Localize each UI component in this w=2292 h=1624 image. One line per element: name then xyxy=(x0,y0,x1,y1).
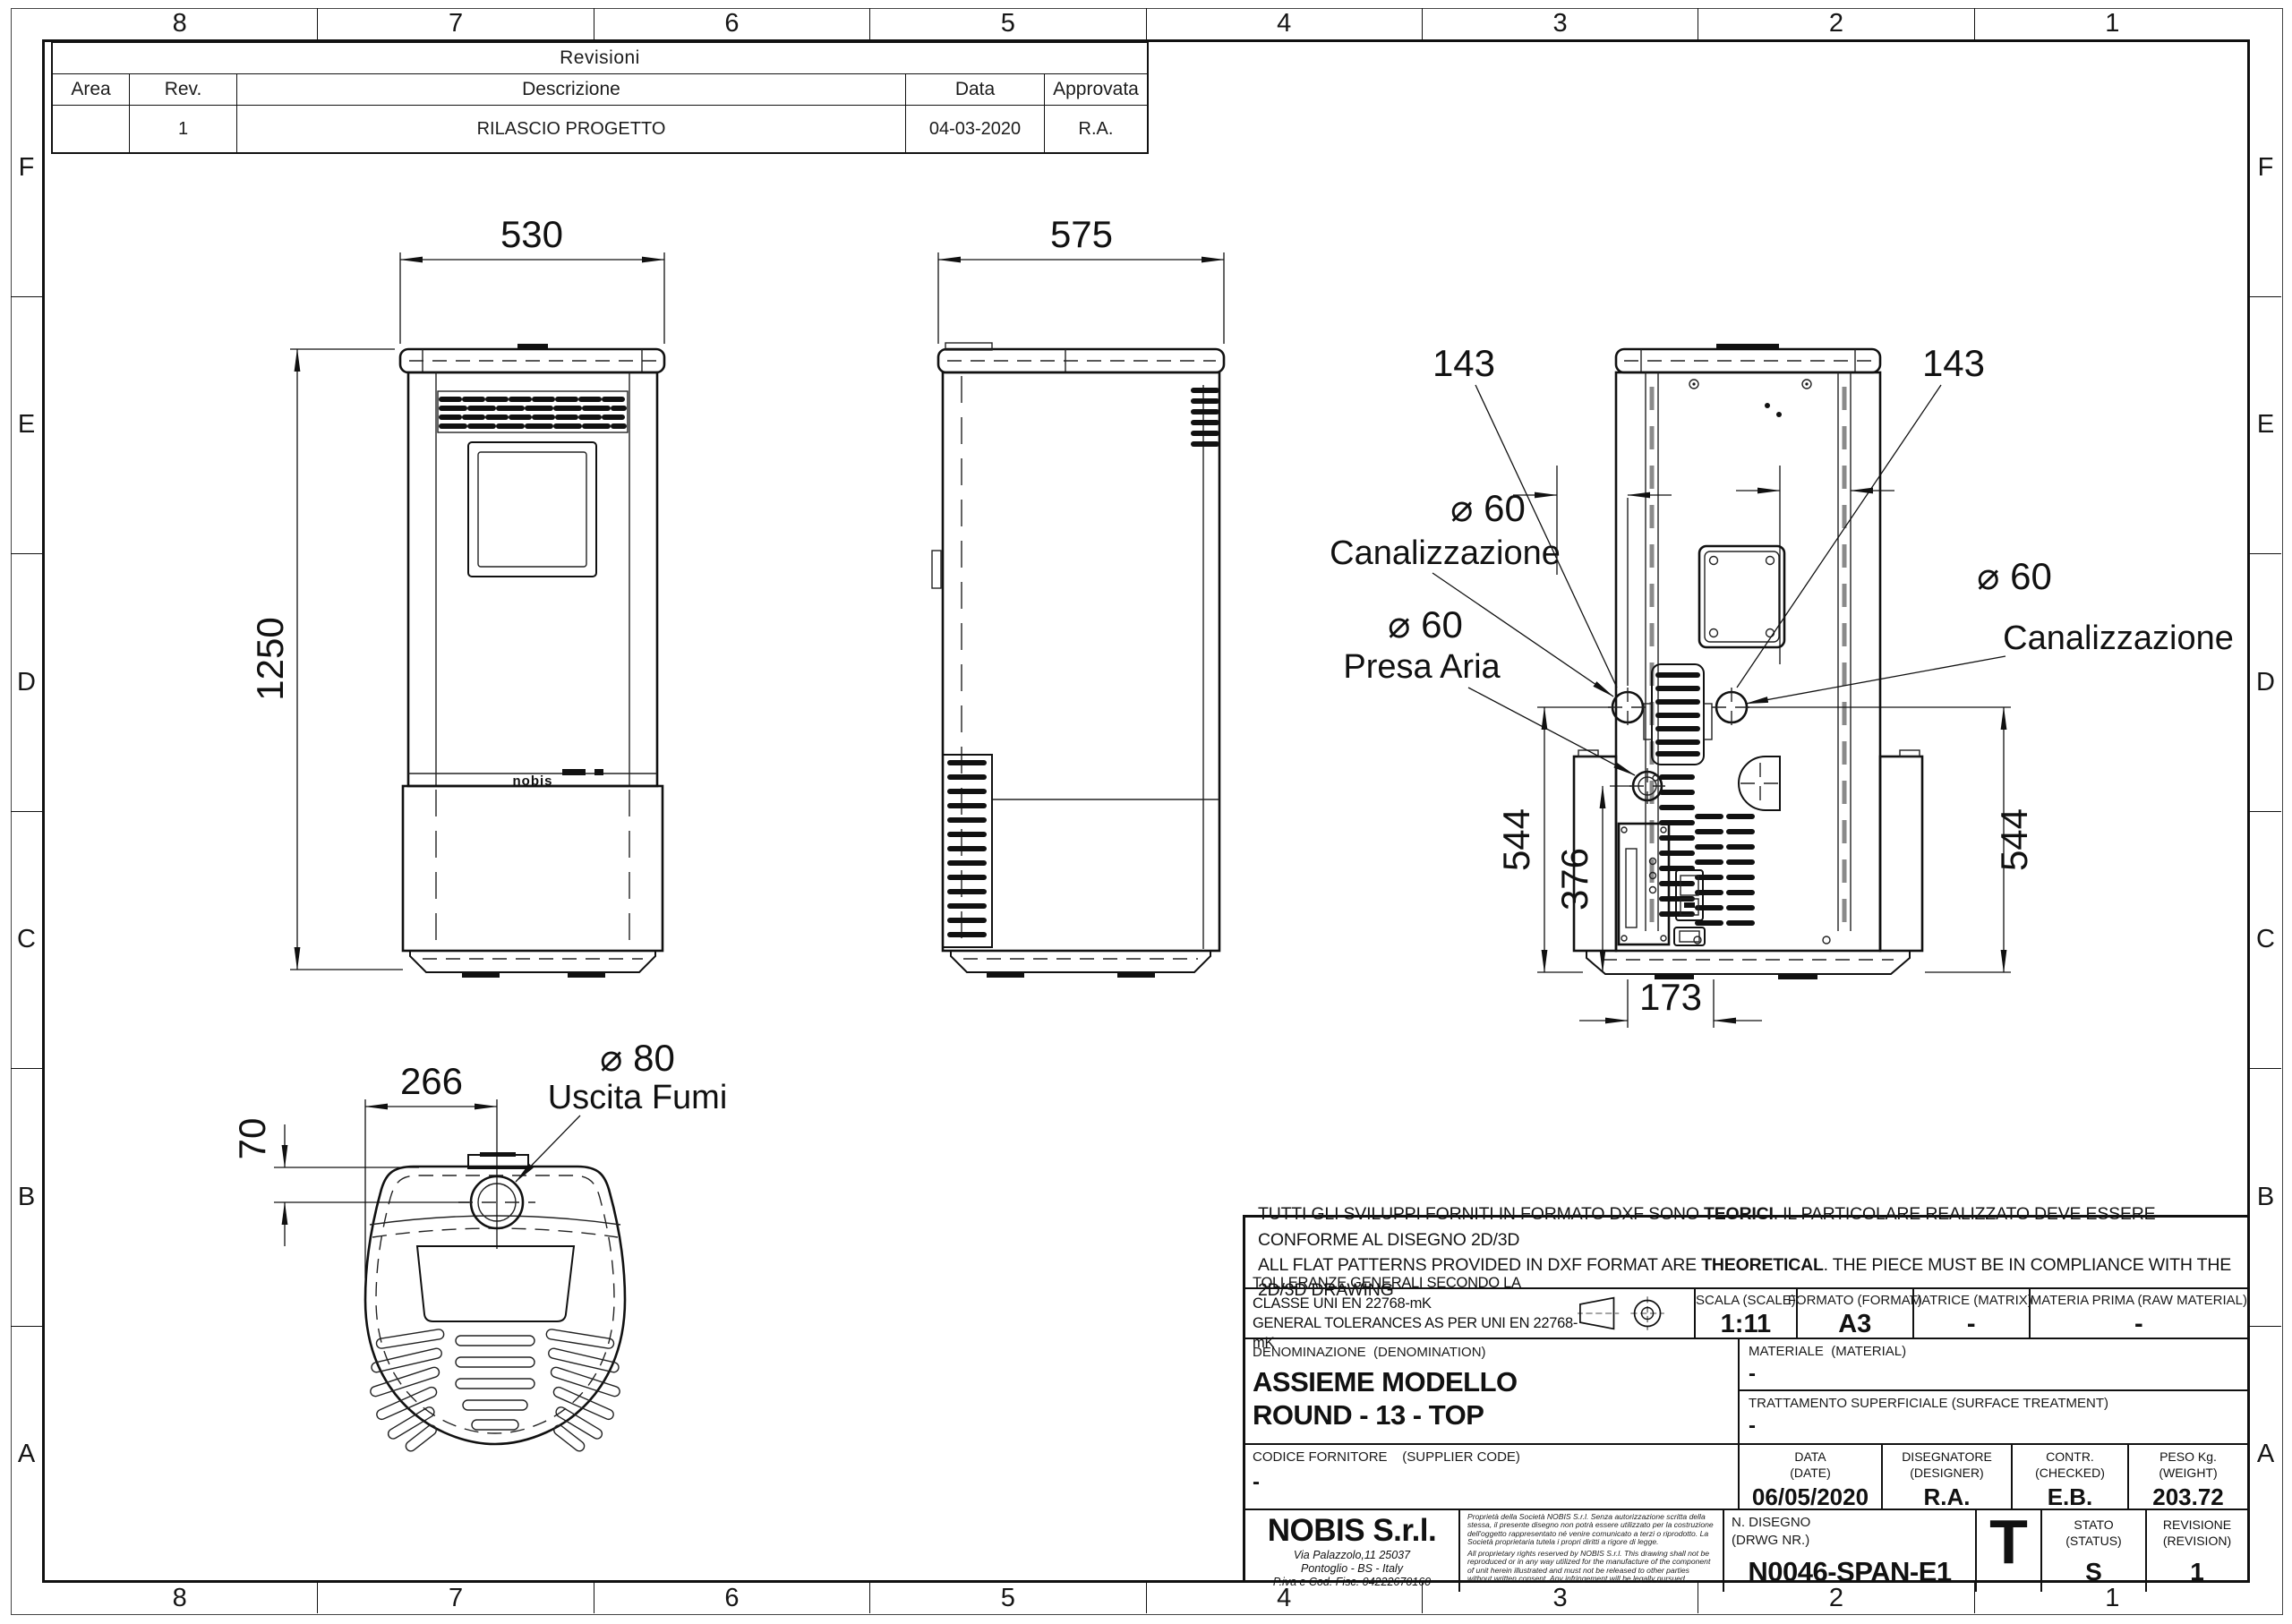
date-cell: DATA (DATE) 06/05/2020 xyxy=(1740,1445,1883,1509)
matrix-cell: MATRICE (MATRIX) - xyxy=(1914,1289,2031,1338)
legal-notice-en: All proprietary rights reserved by NOBIS… xyxy=(1467,1550,1715,1584)
dim-front-width: 530 xyxy=(500,213,563,255)
label-duct-left-dia: ⌀ 60 xyxy=(1450,487,1526,529)
dim-back-right-offset: 143 xyxy=(1922,342,1985,384)
date-label-en: (DATE) xyxy=(1790,1466,1831,1482)
weight-value: 203.72 xyxy=(2152,1483,2224,1511)
company-row: NOBIS S.r.l. Via Palazzolo,11 25037 Pont… xyxy=(1245,1510,2247,1592)
supplier-code-label: CODICE FORNITORE (SUPPLIER CODE) xyxy=(1253,1449,1731,1465)
label-duct-right: Canalizzazione xyxy=(2003,620,2234,657)
supplier-code-value: - xyxy=(1253,1470,1731,1495)
revision-label: REVISIONE (REVISION) xyxy=(2163,1517,2231,1549)
company-addr1: Via Palazzolo,11 25037 xyxy=(1273,1549,1431,1562)
material-label: MATERIALE (MATERIAL) xyxy=(1749,1344,2238,1359)
denomination-row: DENOMINAZIONE (DENOMINATION) ASSIEME MOD… xyxy=(1245,1339,2247,1445)
weight-label-en: (WEIGHT) xyxy=(2159,1466,2217,1482)
scale-cell: SCALA (SCALE) 1:11 xyxy=(1696,1289,1798,1338)
dim-air-intake-height: 376 xyxy=(1553,848,1595,910)
side-view: 575 xyxy=(932,213,1224,978)
title-block: TUTTI GLI SVILUPPI FORNITI IN FORMATO DX… xyxy=(1243,1215,2250,1583)
type-mark: T xyxy=(1989,1510,2028,1573)
checked-label: CONTR. (CHECKED) xyxy=(2035,1449,2105,1481)
designer-label-it: DISEGNATORE xyxy=(1902,1449,1992,1466)
matrix-label: MATRICE (MATRIX) xyxy=(1911,1293,2032,1308)
disclaimer-it-a: TUTTI GLI SVILUPPI FORNITI IN FORMATO DX… xyxy=(1258,1204,1704,1224)
tolerances-line1: TOLLERANZE GENERALI SECONDO LA CLASSE UN… xyxy=(1253,1273,1578,1313)
revision-cell: REVISIONE (REVISION) 1 xyxy=(2147,1510,2247,1592)
disclaimer-it: TUTTI GLI SVILUPPI FORNITI IN FORMATO DX… xyxy=(1258,1201,2235,1252)
designer-label: DISEGNATORE (DESIGNER) xyxy=(1902,1449,1992,1481)
back-view: 143 143 ⌀ 60 Canalizzazione ⌀ 60 Presa A… xyxy=(1330,342,2234,1028)
dim-front-height: 1250 xyxy=(249,617,291,700)
label-flue-dia: ⌀ 80 xyxy=(600,1037,675,1079)
top-view: 266 70 ⌀ 80 Uscita Fumi xyxy=(231,1037,727,1453)
col-header-rev: Rev. xyxy=(130,74,237,105)
cell-area xyxy=(53,106,130,152)
cell-data: 04-03-2020 xyxy=(906,106,1045,152)
drawing-number-value: N0046-SPAN-E1 xyxy=(1732,1556,1968,1588)
revision-table: Revisioni Area Rev. Descrizione Data App… xyxy=(51,41,1149,154)
designer-label-en: (DESIGNER) xyxy=(1902,1466,1992,1482)
drawing-number-label-en: (DRWG NR.) xyxy=(1732,1532,1968,1550)
col-header-descrizione: Descrizione xyxy=(237,74,906,105)
company-addr3: P.iva e Cod. Fisc. 04222670160 xyxy=(1273,1576,1431,1589)
disclaimer-en-b: THEORETICAL xyxy=(1701,1255,1823,1275)
checked-value: E.B. xyxy=(2048,1483,2093,1511)
supplier-date-row: CODICE FORNITORE (SUPPLIER CODE) - DATA … xyxy=(1245,1445,2247,1510)
status-label-en: (STATUS) xyxy=(2065,1534,2121,1550)
checked-label-it: CONTR. xyxy=(2035,1449,2105,1466)
drawing-number-cell: N. DISEGNO (DRWG NR.) N0046-SPAN-E1 xyxy=(1724,1510,1977,1592)
revision-value: 1 xyxy=(2190,1558,2204,1586)
company-address: Via Palazzolo,11 25037 Pontoglio - BS - … xyxy=(1273,1549,1431,1589)
format-label: FORMATO (FORMAT) xyxy=(1788,1293,1922,1308)
status-label: STATO (STATUS) xyxy=(2065,1517,2121,1549)
legal-notice-cell: Proprietà della Società NOBIS S.r.l. Sen… xyxy=(1460,1510,1724,1592)
col-header-area: Area xyxy=(53,74,130,105)
disclaimer-it-b: TEORICI xyxy=(1704,1204,1774,1224)
label-air-intake: Presa Aria xyxy=(1343,648,1501,686)
company-addr2: Pontoglio - BS - Italy xyxy=(1273,1562,1431,1576)
col-header-approvata: Approvata xyxy=(1045,74,1147,105)
format-cell: FORMATO (FORMAT) A3 xyxy=(1798,1289,1914,1338)
denomination-line1: ASSIEME MODELLO xyxy=(1253,1365,1731,1398)
matrix-value: - xyxy=(1967,1310,1976,1339)
weight-cell: PESO Kg. (WEIGHT) 203.72 xyxy=(2129,1445,2247,1509)
raw-material-cell: MATERIA PRIMA (RAW MATERIAL) - xyxy=(2031,1289,2247,1338)
dim-back-left-offset: 143 xyxy=(1432,342,1495,384)
weight-label-it: PESO Kg. xyxy=(2159,1449,2217,1466)
status-cell: STATO (STATUS) S xyxy=(2042,1510,2147,1592)
label-air-intake-dia: ⌀ 60 xyxy=(1388,603,1463,645)
designer-cell: DISEGNATORE (DESIGNER) R.A. xyxy=(1883,1445,2013,1509)
format-value: A3 xyxy=(1838,1310,1871,1339)
revision-label-it: REVISIONE xyxy=(2163,1517,2231,1534)
dim-duct-spacing: 173 xyxy=(1639,976,1702,1018)
cell-rev: 1 xyxy=(130,106,237,152)
type-mark-cell: T xyxy=(1977,1510,2042,1592)
surface-treatment-value: - xyxy=(1749,1414,2238,1439)
date-label: DATA (DATE) xyxy=(1790,1449,1831,1481)
legal-notice-it: Proprietà della Società NOBIS S.r.l. Sen… xyxy=(1467,1513,1715,1547)
cell-descrizione: RILASCIO PROGETTO xyxy=(237,106,906,152)
dim-side-depth: 575 xyxy=(1050,213,1113,255)
dim-back-height-right: 544 xyxy=(1993,808,2035,871)
checked-cell: CONTR. (CHECKED) E.B. xyxy=(2013,1445,2129,1509)
revision-table-header: Area Rev. Descrizione Data Approvata xyxy=(53,74,1147,106)
checked-label-en: (CHECKED) xyxy=(2035,1466,2105,1482)
label-duct-right-dia: ⌀ 60 xyxy=(1977,555,2052,597)
denomination-value: ASSIEME MODELLO ROUND - 13 - TOP xyxy=(1253,1365,1731,1432)
date-value: 06/05/2020 xyxy=(1752,1483,1869,1511)
revision-row: 1 RILASCIO PROGETTO 04-03-2020 R.A. xyxy=(53,106,1147,152)
surface-treatment-label: TRATTAMENTO SUPERFICIALE (SURFACE TREATM… xyxy=(1749,1396,2238,1411)
dim-back-height-left: 544 xyxy=(1495,808,1537,871)
material-column: MATERIALE (MATERIAL) - TRATTAMENTO SUPER… xyxy=(1740,1339,2247,1443)
raw-material-label: MATERIA PRIMA (RAW MATERIAL) xyxy=(2031,1293,2247,1308)
company-name: NOBIS S.r.l. xyxy=(1268,1513,1437,1549)
material-value: - xyxy=(1749,1362,2238,1387)
label-flue: Uscita Fumi xyxy=(548,1079,728,1116)
raw-material-value: - xyxy=(2134,1310,2143,1339)
first-angle-projection-icon xyxy=(1578,1290,1681,1337)
label-duct-left: Canalizzazione xyxy=(1330,534,1561,572)
front-view: nobis 530 1250 xyxy=(249,213,664,978)
tolerances-cell: TOLLERANZE GENERALI SECONDO LA CLASSE UN… xyxy=(1245,1289,1696,1338)
disclaimer-en-a: ALL FLAT PATTERNS PROVIDED IN DXF FORMAT… xyxy=(1258,1255,1701,1275)
weight-label: PESO Kg. (WEIGHT) xyxy=(2159,1449,2217,1481)
denomination-cell: DENOMINAZIONE (DENOMINATION) ASSIEME MOD… xyxy=(1245,1339,1740,1443)
date-label-it: DATA xyxy=(1790,1449,1831,1466)
designer-value: R.A. xyxy=(1924,1483,1971,1511)
revision-label-en: (REVISION) xyxy=(2163,1534,2231,1550)
scale-value: 1:11 xyxy=(1721,1310,1771,1339)
drawing-sheet: 8 7 6 5 4 3 2 1 8 7 6 5 4 3 2 1 F E D C … xyxy=(0,0,2292,1624)
tolerance-scale-row: TOLLERANZE GENERALI SECONDO LA CLASSE UN… xyxy=(1245,1289,2247,1339)
status-label-it: STATO xyxy=(2065,1517,2121,1534)
material-cell: MATERIALE (MATERIAL) - xyxy=(1740,1339,2247,1391)
company-cell: NOBIS S.r.l. Via Palazzolo,11 25037 Pont… xyxy=(1245,1510,1460,1592)
denomination-line2: ROUND - 13 - TOP xyxy=(1253,1398,1731,1432)
drawing-number-label-it: N. DISEGNO xyxy=(1732,1514,1968,1532)
col-header-data: Data xyxy=(906,74,1045,105)
cell-approvata: R.A. xyxy=(1045,106,1147,152)
supplier-code-cell: CODICE FORNITORE (SUPPLIER CODE) - xyxy=(1245,1445,1740,1509)
status-value: S xyxy=(2085,1558,2102,1586)
dim-top-offset-x: 266 xyxy=(400,1060,463,1102)
denomination-label: DENOMINAZIONE (DENOMINATION) xyxy=(1253,1345,1731,1360)
revision-table-title: Revisioni xyxy=(53,43,1147,74)
surface-treatment-cell: TRATTAMENTO SUPERFICIALE (SURFACE TREATM… xyxy=(1740,1391,2247,1443)
dim-top-offset-y: 70 xyxy=(231,1118,273,1160)
scale-label: SCALA (SCALE) xyxy=(1696,1293,1796,1308)
